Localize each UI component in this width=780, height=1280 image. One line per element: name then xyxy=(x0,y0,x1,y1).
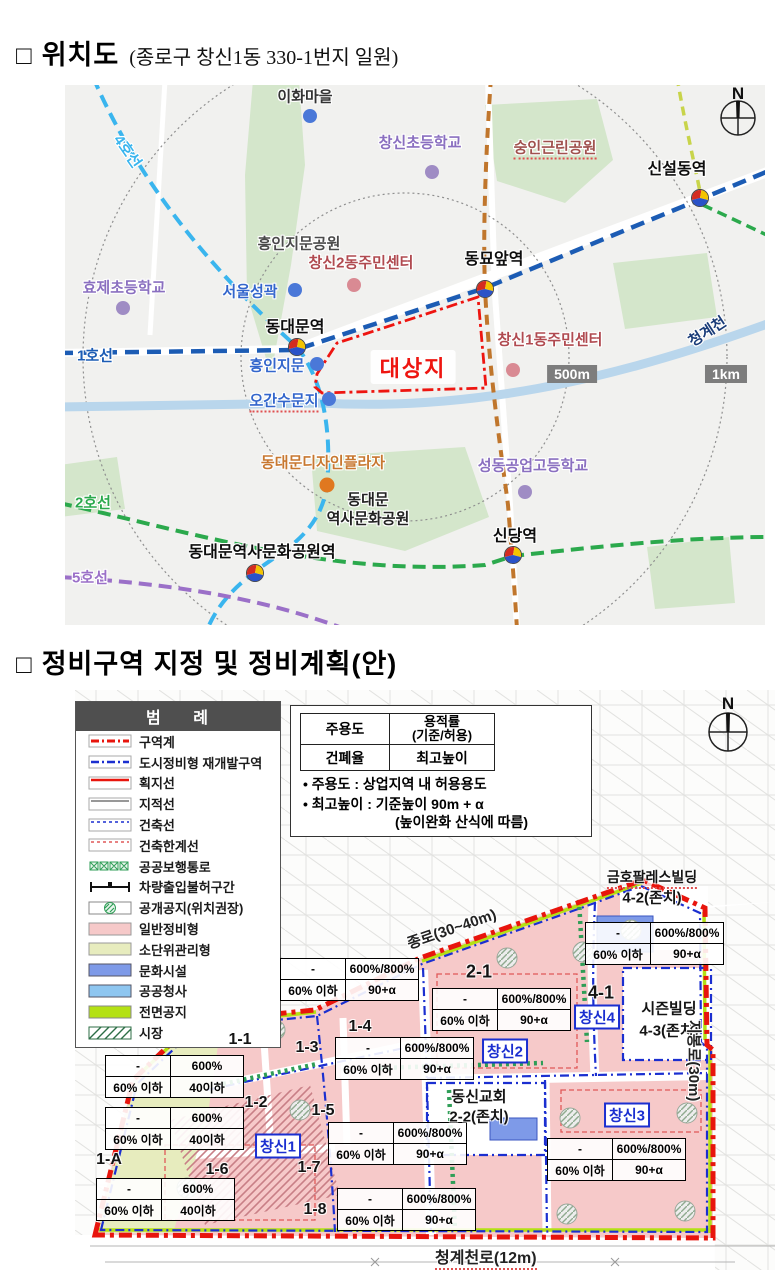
plan-map: 범 례 구역계 도시정비형 재개발구역 획지선 지적선 건축선 건축한계선 공공… xyxy=(75,690,775,1270)
legend-item: 지적선 xyxy=(76,793,280,814)
label-line2: 2호선 xyxy=(75,492,111,513)
label-ogansu: 오간수문지 xyxy=(249,390,318,413)
legend-title: 범 례 xyxy=(76,702,280,731)
key-bcr: 건폐율 xyxy=(301,745,390,771)
scale-1km: 1km xyxy=(705,365,747,383)
label-hyoje-elementary: 효제초등학교 xyxy=(83,277,166,298)
label-ddm-history-park-1: 동대문 xyxy=(347,489,388,510)
legend-item: 공공청사 xyxy=(76,981,280,1002)
culture-facility-symbol-icon xyxy=(88,963,132,977)
section2-title: □ 정비구역 지정 및 정비계획(안) xyxy=(16,642,397,681)
road-label-cheonggyecheonro: 청계천로(12m) xyxy=(435,1244,537,1270)
parcel-table-changsin3: -600%/800% 60% 이하90+α xyxy=(547,1138,686,1181)
key-table-box: 주용도 용적률(기준/허용) 건폐율 최고높이 • 주용도 : 상업지역 내 허… xyxy=(290,705,592,837)
legend-item: 획지선 xyxy=(76,773,280,794)
public-office-symbol-icon xyxy=(88,984,132,998)
district-label-changsin2: 창신2 xyxy=(482,1039,528,1064)
no-vehicle-access-symbol-icon xyxy=(88,880,132,894)
label-ddm-history-park-station: 동대문역사문화공원역 xyxy=(188,538,335,562)
zone-label-season-bldg: 시즌빌딩 xyxy=(641,998,696,1019)
subway-line-2-branch xyxy=(703,205,765,237)
subway-line-5 xyxy=(65,577,400,625)
key-note-2: • 최고높이 : 기준높이 90m + α xyxy=(303,794,484,814)
zone-label-1-5: 1-5 xyxy=(311,1102,334,1120)
parcel-table-1-6: -600% 60% 이하40이하 xyxy=(96,1178,235,1221)
label-sinseoldong-station: 신설동역 xyxy=(648,155,707,179)
lot-line-symbol-icon xyxy=(88,776,132,790)
label-seoul-wall: 서울성곽 xyxy=(222,281,277,302)
section2-title-text: 정비구역 지정 및 정비계획(안) xyxy=(42,642,398,681)
key-max-height: 최고높이 xyxy=(390,745,495,771)
zone-label-1-1: 1-1 xyxy=(228,1031,251,1049)
zone-label-1-7: 1-7 xyxy=(297,1159,320,1177)
compass-icon xyxy=(721,101,755,135)
park-areas xyxy=(65,85,735,609)
key-main-use: 주용도 xyxy=(301,714,390,745)
zone-label-1-8: 1-8 xyxy=(303,1201,326,1219)
legend-item: 건축한계선 xyxy=(76,835,280,856)
zone-label-1-6: 1-6 xyxy=(205,1161,228,1179)
section1-subtitle: (종로구 창신1동 330-1번지 일원) xyxy=(129,41,398,70)
district-boundary-symbol-icon xyxy=(88,734,132,748)
label-line5: 5호선 xyxy=(72,567,108,588)
title-checkbox-icon: □ xyxy=(16,649,32,680)
zone-label-1-2: 1-2 xyxy=(244,1094,267,1112)
key-far: 용적률(기준/허용) xyxy=(390,714,495,745)
building-line-symbol-icon xyxy=(88,818,132,832)
legend-item: 공개공지(위치권장) xyxy=(76,897,280,918)
legend-item: 소단위관리형 xyxy=(76,939,280,960)
redevelopment-zone-symbol-icon xyxy=(88,755,132,769)
label-line1: 1호선 xyxy=(77,345,113,366)
district-label-changsin1: 창신1 xyxy=(255,1134,301,1159)
key-table: 주용도 용적률(기준/허용) 건폐율 최고높이 xyxy=(300,713,495,771)
building-limit-symbol-icon xyxy=(88,838,132,852)
parcel-table-1-2: -600% 60% 이하40이하 xyxy=(105,1107,244,1150)
label-seongdong-hs: 성동공업고등학교 xyxy=(478,455,588,476)
label-sungin-park: 숭인근린공원 xyxy=(514,137,597,160)
label-changsin2-center: 창신2동주민센터 xyxy=(309,252,414,273)
label-changsin-elementary: 창신초등학교 xyxy=(379,132,462,153)
poi-dots xyxy=(116,109,532,499)
label-heunginjimun: 흥인지문 xyxy=(249,355,304,376)
label-ddm-history-park-2: 역사문화공원 xyxy=(327,508,410,529)
zone-label-1-A: 1-A xyxy=(96,1151,122,1169)
zone-label-1-4: 1-4 xyxy=(348,1018,371,1036)
cadastral-line-symbol-icon xyxy=(88,797,132,811)
district-label-changsin4: 창신4 xyxy=(574,1005,620,1030)
label-sindang-station: 신당역 xyxy=(493,522,537,546)
label-ihwa-village: 이화마을 xyxy=(277,86,332,107)
bottom-road-lines xyxy=(90,1246,775,1266)
label-ddp: 동대문디자인플라자 xyxy=(261,452,385,473)
legend-item: 문화시설 xyxy=(76,960,280,981)
document-page: { "colors":{"boundary_red":"#e8150d","zo… xyxy=(0,0,780,1280)
label-dongdaemun-station: 동대문역 xyxy=(266,313,325,337)
parcel-table-1-4: -600%/800% 60% 이하90+α xyxy=(335,1037,474,1080)
legend-item: 공공보행통로 xyxy=(76,856,280,877)
zone-label-dongsin-church: 동신교회 xyxy=(451,1086,506,1107)
label-heunginjimun-park: 흥인지문공원 xyxy=(258,233,341,254)
road-label-jibongro: 지봉로(30m) xyxy=(684,1020,705,1101)
parcel-table-1-1: -600% 60% 이하40이하 xyxy=(105,1055,244,1098)
front-open-space-symbol-icon xyxy=(88,1005,132,1019)
parcel-table-4-2: -600%/800% 60% 이하90+α xyxy=(585,922,724,965)
ui-sinseol-line xyxy=(677,85,701,197)
key-note-3: (높이완화 산식에 따름) xyxy=(395,812,528,832)
parcel-table-2-1: -600%/800% 60% 이하90+α xyxy=(432,988,571,1031)
target-site-label: 대상지 xyxy=(371,350,456,384)
section1-title: □ 위치도 (종로구 창신1동 330-1번지 일원) xyxy=(16,33,398,72)
zone-label-4-1: 4-1 xyxy=(588,983,614,1004)
scale-500m: 500m xyxy=(547,365,597,383)
legend-item: 전면공지 xyxy=(76,1001,280,1022)
legend-item: 도시정비형 재개발구역 xyxy=(76,752,280,773)
general-renewal-symbol-icon xyxy=(88,922,132,936)
zone-label-1-3: 1-3 xyxy=(295,1039,318,1057)
title-checkbox-icon: □ xyxy=(16,40,32,71)
compass-icon xyxy=(709,713,747,751)
parcel-table-1-8: -600%/800% 60% 이하90+α xyxy=(337,1188,476,1231)
compass-n-label: N xyxy=(722,694,734,714)
key-note-1: • 주용도 : 상업지역 내 허용용도 xyxy=(303,774,487,794)
market-symbol-icon xyxy=(88,1026,132,1040)
legend-item: 구역계 xyxy=(76,731,280,752)
label-changsin1-center: 창신1동주민센터 xyxy=(498,329,603,350)
legend: 범 례 구역계 도시정비형 재개발구역 획지선 지적선 건축선 건축한계선 공공… xyxy=(75,701,281,1048)
legend-item: 건축선 xyxy=(76,814,280,835)
legend-item: 일반정비형 xyxy=(76,918,280,939)
zone-label-2-2: 2-2(존치) xyxy=(449,1106,508,1127)
location-map: 이화마을 창신초등학교 숭인근린공원 신설동역 흥인지문공원 창신2동주민센터 … xyxy=(65,85,765,625)
parcel-table-1-5: -600%/800% 60% 이하90+α xyxy=(328,1122,467,1165)
compass-n-label: N xyxy=(732,85,744,104)
district-label-changsin3: 창신3 xyxy=(604,1103,650,1128)
public-walkway-symbol-icon xyxy=(88,859,132,873)
zone-label-4-2: 4-2(존치) xyxy=(622,887,681,908)
open-space-symbol-icon xyxy=(88,901,132,915)
legend-item: 차량출입불허구간 xyxy=(76,877,280,898)
zone-label-2-1: 2-1 xyxy=(466,962,492,983)
small-unit-symbol-icon xyxy=(88,942,132,956)
section1-title-text: 위치도 xyxy=(42,33,120,72)
label-dongmyo-station: 동묘앞역 xyxy=(465,245,524,269)
parcel-table-jongno-west: -600%/800% 60% 이하90+α xyxy=(280,958,419,1001)
